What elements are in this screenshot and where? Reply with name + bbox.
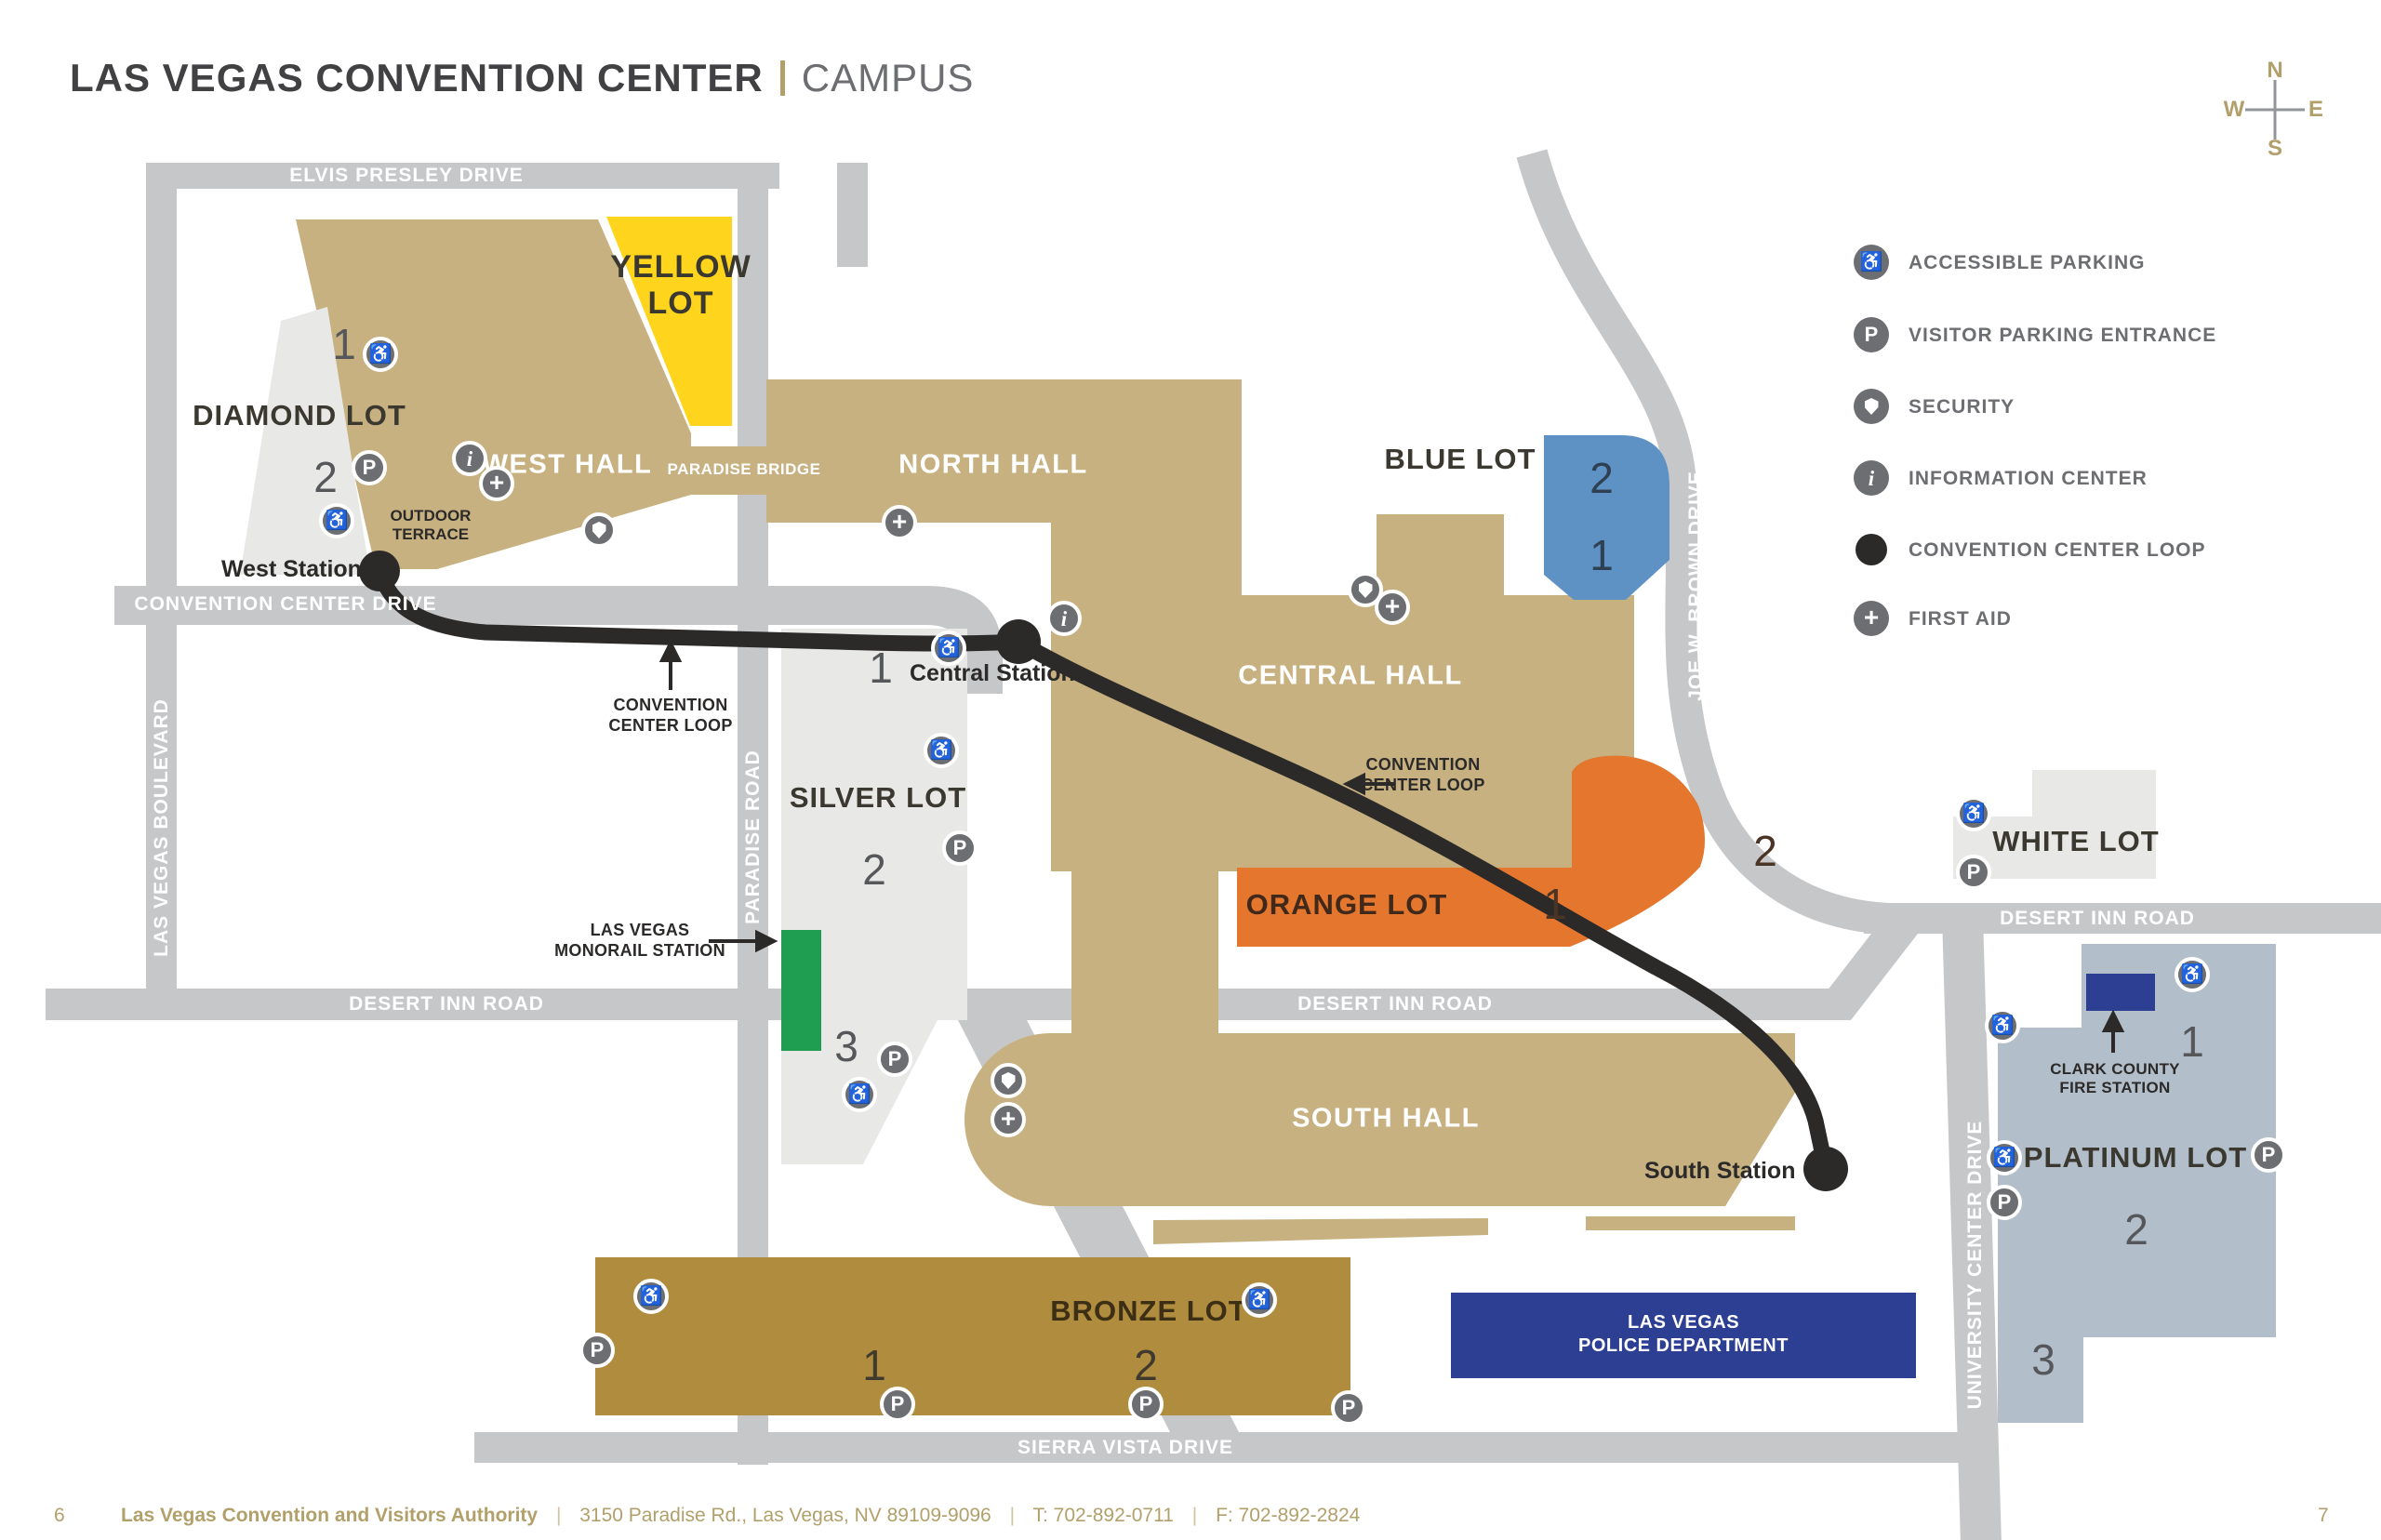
visitor-parking-icon: P	[942, 830, 978, 866]
bronze-lot-2: 2	[1134, 1340, 1158, 1390]
title-divider	[780, 60, 785, 96]
south-hall-label: SOUTH HALL	[1292, 1104, 1480, 1135]
orange-lot-1: 1	[1543, 879, 1567, 929]
diamond-lot-label: DIAMOND LOT	[193, 399, 406, 432]
south-station-label: South Station	[1644, 1158, 1795, 1185]
footer-page-right: 7	[2318, 1505, 2329, 1527]
loop-arrow-left-head	[662, 644, 679, 660]
blue-lot-2: 2	[1590, 453, 1614, 503]
silver-lot-2: 2	[862, 844, 886, 895]
road-label-elvis-presley: ELVIS PRESLEY DRIVE	[289, 165, 524, 187]
loop-label-west: CONVENTION CENTER LOOP	[608, 696, 732, 736]
accessible-parking-icon: ♿	[924, 733, 959, 768]
south-dock-strip-2	[1586, 1216, 1795, 1230]
visitor-parking-icon: P	[880, 1387, 915, 1422]
first-aid-icon: +	[1375, 590, 1410, 625]
blue-lot-1: 1	[1590, 530, 1614, 580]
accessible-parking-icon: ♿	[1242, 1282, 1277, 1318]
shield-glyph	[1359, 581, 1373, 598]
yellow-lot-label: YELLOW LOT	[610, 249, 751, 322]
road-label-joe-w-brown: JOE W. BROWN DRIVE	[1685, 471, 1708, 701]
footer-address: 3150 Paradise Rd., Las Vegas, NV 89109-9…	[579, 1505, 991, 1526]
accessible-parking-icon: ♿	[363, 337, 398, 372]
platinum-lot-3: 3	[2031, 1334, 2055, 1385]
campus-map-page: LAS VEGAS CONVENTION CENTER CAMPUS N W E…	[0, 0, 2381, 1540]
accessible-parking-icon: ♿	[1985, 1008, 2020, 1043]
white-lot-label: WHITE LOT	[1992, 825, 2159, 858]
security-icon	[991, 1063, 1026, 1098]
legend-item-information: INFORMATION CENTER	[1909, 468, 2148, 490]
security-icon	[1854, 389, 1889, 424]
compass-e: E	[2308, 97, 2323, 123]
fire-station-shape	[2086, 974, 2155, 1011]
fire-station-label: CLARK COUNTY FIRE STATION	[2050, 1060, 2180, 1098]
platinum-lot-1: 1	[2180, 1016, 2204, 1067]
diamond-lot-2: 2	[313, 452, 338, 502]
page-header: LAS VEGAS CONVENTION CENTER CAMPUS	[70, 56, 974, 100]
buildings-layer	[296, 219, 1795, 1244]
bronze-lot-label: BRONZE LOT	[1050, 1294, 1247, 1328]
police-department-label: LAS VEGAS POLICE DEPARTMENT	[1578, 1311, 1789, 1358]
first-aid-icon: +	[991, 1102, 1026, 1137]
orange-lot-2: 2	[1753, 826, 1777, 876]
south-station-dot	[1803, 1147, 1848, 1191]
central-south-link	[1071, 871, 1218, 1033]
accessible-parking-icon: ♿	[1854, 245, 1889, 280]
footer-fax: F: 702-892-2824	[1216, 1505, 1360, 1526]
shield-glyph	[592, 522, 606, 538]
compass-cross	[2245, 80, 2305, 139]
diamond-lot-1: 1	[332, 319, 356, 369]
information-icon: i	[452, 441, 487, 476]
north-hall-label: NORTH HALL	[898, 450, 1087, 481]
road-label-desert-inn-mid: DESERT INN ROAD	[1297, 993, 1493, 1016]
shield-glyph	[1865, 398, 1879, 415]
blue-lot-label: BLUE LOT	[1385, 443, 1536, 476]
shield-glyph	[1002, 1072, 1016, 1089]
legend-item-loop: CONVENTION CENTER LOOP	[1909, 539, 2206, 562]
central-hall-label: CENTRAL HALL	[1238, 661, 1462, 692]
loop-label-central: CONVENTION CENTER LOOP	[1361, 755, 1484, 795]
information-icon: i	[1046, 601, 1082, 636]
central-station-dot	[996, 619, 1041, 664]
road-label-paradise-rd: PARADISE ROAD	[742, 750, 765, 924]
paradise-bridge-label: PARADISE BRIDGE	[668, 460, 821, 479]
monorail-station-label: LAS VEGAS MONORAIL STATION	[554, 921, 725, 961]
loop-icon	[1856, 534, 1887, 565]
legend-item-security: SECURITY	[1909, 396, 2015, 418]
west-station-dot	[359, 551, 400, 591]
visitor-parking-icon: P	[1128, 1387, 1164, 1422]
west-station-label: West Station	[221, 556, 362, 583]
silver-lot-1: 1	[869, 643, 893, 693]
first-aid-icon: +	[1854, 601, 1889, 636]
first-aid-icon: +	[479, 466, 514, 501]
south-dock-strip-1	[1153, 1218, 1488, 1244]
footer-info: Las Vegas Convention and Visitors Author…	[121, 1505, 1360, 1527]
first-aid-icon: +	[882, 505, 917, 540]
road-label-convention-center-dr: CONVENTION CENTER DRIVE	[134, 593, 436, 616]
road-desert-inn-connector	[1804, 934, 1918, 1020]
bronze-lot-shape	[595, 1257, 1350, 1415]
footer-phone: T: 702-892-0711	[1033, 1505, 1174, 1526]
road-label-university-center: UNIVERSITY CENTER DRIVE	[1964, 1121, 1987, 1410]
visitor-parking-icon: P	[2251, 1137, 2286, 1173]
road-label-desert-inn-left: DESERT INN ROAD	[349, 993, 544, 1016]
visitor-parking-icon: P	[1331, 1390, 1366, 1426]
footer-page-left: 6	[54, 1505, 65, 1527]
visitor-parking-icon: P	[1854, 317, 1889, 352]
accessible-parking-icon: ♿	[319, 503, 354, 538]
footer-org: Las Vegas Convention and Visitors Author…	[121, 1505, 538, 1526]
accessible-parking-icon: ♿	[633, 1279, 669, 1314]
visitor-parking-icon: P	[579, 1333, 615, 1368]
outdoor-terrace-label: OUTDOOR TERRACE	[391, 507, 472, 545]
information-icon: i	[1854, 460, 1889, 496]
road-stub-north	[837, 163, 868, 267]
platinum-lot-label: PLATINUM LOT	[2024, 1141, 2247, 1175]
visitor-parking-icon: P	[877, 1042, 912, 1077]
orange-lot-label: ORANGE LOT	[1246, 888, 1448, 922]
road-label-desert-inn-right: DESERT INN ROAD	[2000, 908, 2195, 930]
visitor-parking-icon: P	[1956, 855, 1991, 890]
platinum-lot-2: 2	[2124, 1204, 2148, 1255]
compass-w: W	[2224, 97, 2245, 123]
monorail-arrow-head	[757, 933, 774, 949]
visitor-parking-icon: P	[1987, 1185, 2022, 1220]
legend-item-accessible: ACCESSIBLE PARKING	[1909, 252, 2145, 274]
visitor-parking-icon: P	[352, 450, 387, 485]
accessible-parking-icon: ♿	[2175, 957, 2210, 992]
north-central-link	[1051, 521, 1242, 599]
security-icon	[581, 512, 617, 548]
accessible-parking-icon: ♿	[1987, 1140, 2022, 1175]
accessible-parking-icon: ♿	[931, 631, 966, 666]
page-subtitle: CAMPUS	[802, 56, 975, 100]
compass-s: S	[2268, 136, 2282, 162]
legend-item-first-aid: FIRST AID	[1909, 608, 2012, 631]
accessible-parking-icon: ♿	[842, 1077, 877, 1112]
legend-item-parking: VISITOR PARKING ENTRANCE	[1909, 325, 2216, 347]
compass-n: N	[2267, 58, 2282, 84]
road-label-sierra-vista: SIERRA VISTA DRIVE	[1018, 1437, 1233, 1459]
central-hall-shape	[1051, 595, 1634, 871]
road-label-las-vegas-blvd: LAS VEGAS BOULEVARD	[151, 698, 173, 957]
accessible-parking-icon: ♿	[1956, 796, 1991, 831]
bronze-lot-1: 1	[862, 1340, 886, 1390]
central-station-label: Central Station	[910, 660, 1075, 687]
central-hall-ne-shape	[1377, 514, 1504, 600]
page-title: LAS VEGAS CONVENTION CENTER	[70, 56, 764, 100]
silver-lot-3: 3	[834, 1021, 858, 1071]
monorail-station-shape	[781, 930, 821, 1051]
silver-lot-label: SILVER LOT	[790, 781, 966, 815]
